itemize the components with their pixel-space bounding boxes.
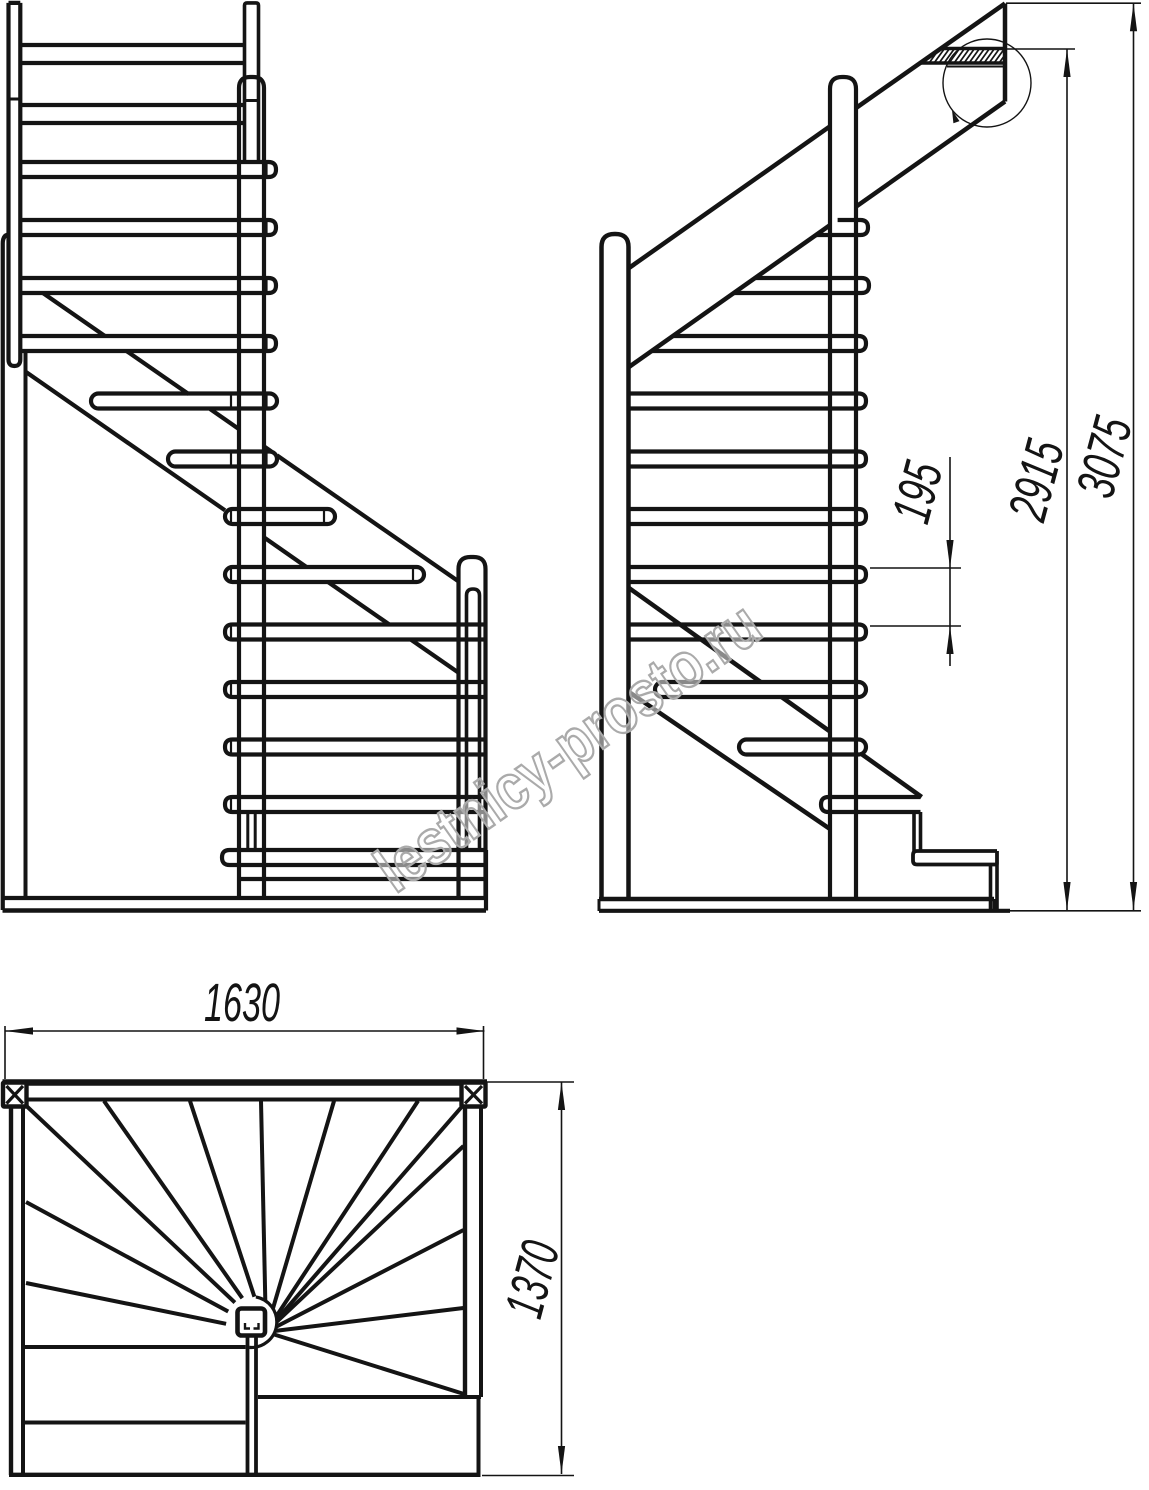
- svg-text:3075: 3075: [1065, 410, 1144, 503]
- svg-text:1370: 1370: [494, 1235, 572, 1324]
- svg-text:1630: 1630: [204, 973, 280, 1033]
- svg-text:195: 195: [881, 455, 955, 529]
- svg-text:2915: 2915: [997, 433, 1076, 527]
